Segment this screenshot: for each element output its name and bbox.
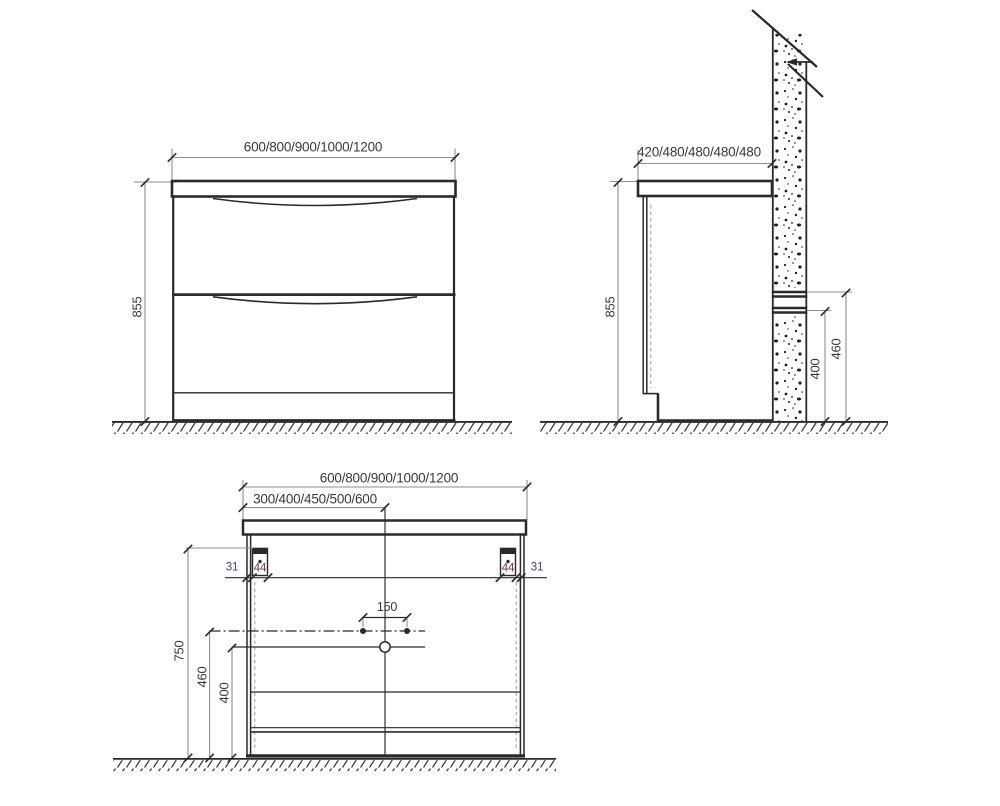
rear-center-label: 300/400/450/500/600	[253, 492, 377, 506]
front-width-label: 600/800/900/1000/1200	[244, 140, 382, 154]
technical-drawing-canvas: 600/800/900/1000/1200 855 420/480/480/48…	[0, 0, 1000, 806]
rear-hole-spacing-label: 150	[377, 601, 397, 614]
rear-height-400-dimension	[228, 644, 425, 762]
front-view	[112, 149, 512, 435]
side-rail-lower-label: 400	[809, 358, 822, 379]
rear-drain-hole	[380, 642, 390, 652]
rear-width-label: 600/800/900/1000/1200	[320, 471, 458, 485]
side-ground	[540, 422, 888, 434]
drawing-linework	[0, 0, 1000, 806]
rear-height-460-label: 460	[196, 666, 209, 687]
front-drawer2-handle-curve	[213, 297, 417, 304]
rear-bracket-width-left-label: 44	[254, 563, 266, 575]
rear-bracket-dimension-line	[225, 574, 547, 582]
wall-mounting-rails	[772, 292, 807, 313]
front-drawer1-handle-curve	[213, 199, 417, 206]
front-ground	[112, 422, 512, 434]
side-countertop	[638, 181, 772, 196]
front-cabinet-outline	[172, 181, 456, 420]
rear-height-750-label: 750	[173, 640, 186, 661]
front-height-label: 855	[131, 296, 144, 317]
side-cabinet-outline	[638, 181, 772, 421]
side-depth-label: 420/480/480/480/480	[637, 145, 761, 159]
front-countertop	[172, 181, 456, 197]
rear-mount-hole-right	[404, 628, 410, 634]
rear-mount-hole-left	[360, 628, 366, 634]
side-rail-upper-label: 460	[830, 338, 843, 359]
rear-view	[113, 480, 556, 771]
rear-height-460-dimension	[205, 628, 425, 762]
side-height-label: 855	[604, 296, 617, 317]
rear-bracket-width-right-label: 44	[502, 563, 514, 575]
rear-bracket-inset-right-label: 31	[531, 562, 543, 574]
rear-ground	[113, 759, 556, 771]
rear-bracket-inset-left-label: 31	[226, 562, 238, 574]
side-view	[540, 10, 888, 434]
rear-height-400-label: 400	[218, 682, 231, 703]
rear-cabinet-outline	[243, 508, 526, 757]
